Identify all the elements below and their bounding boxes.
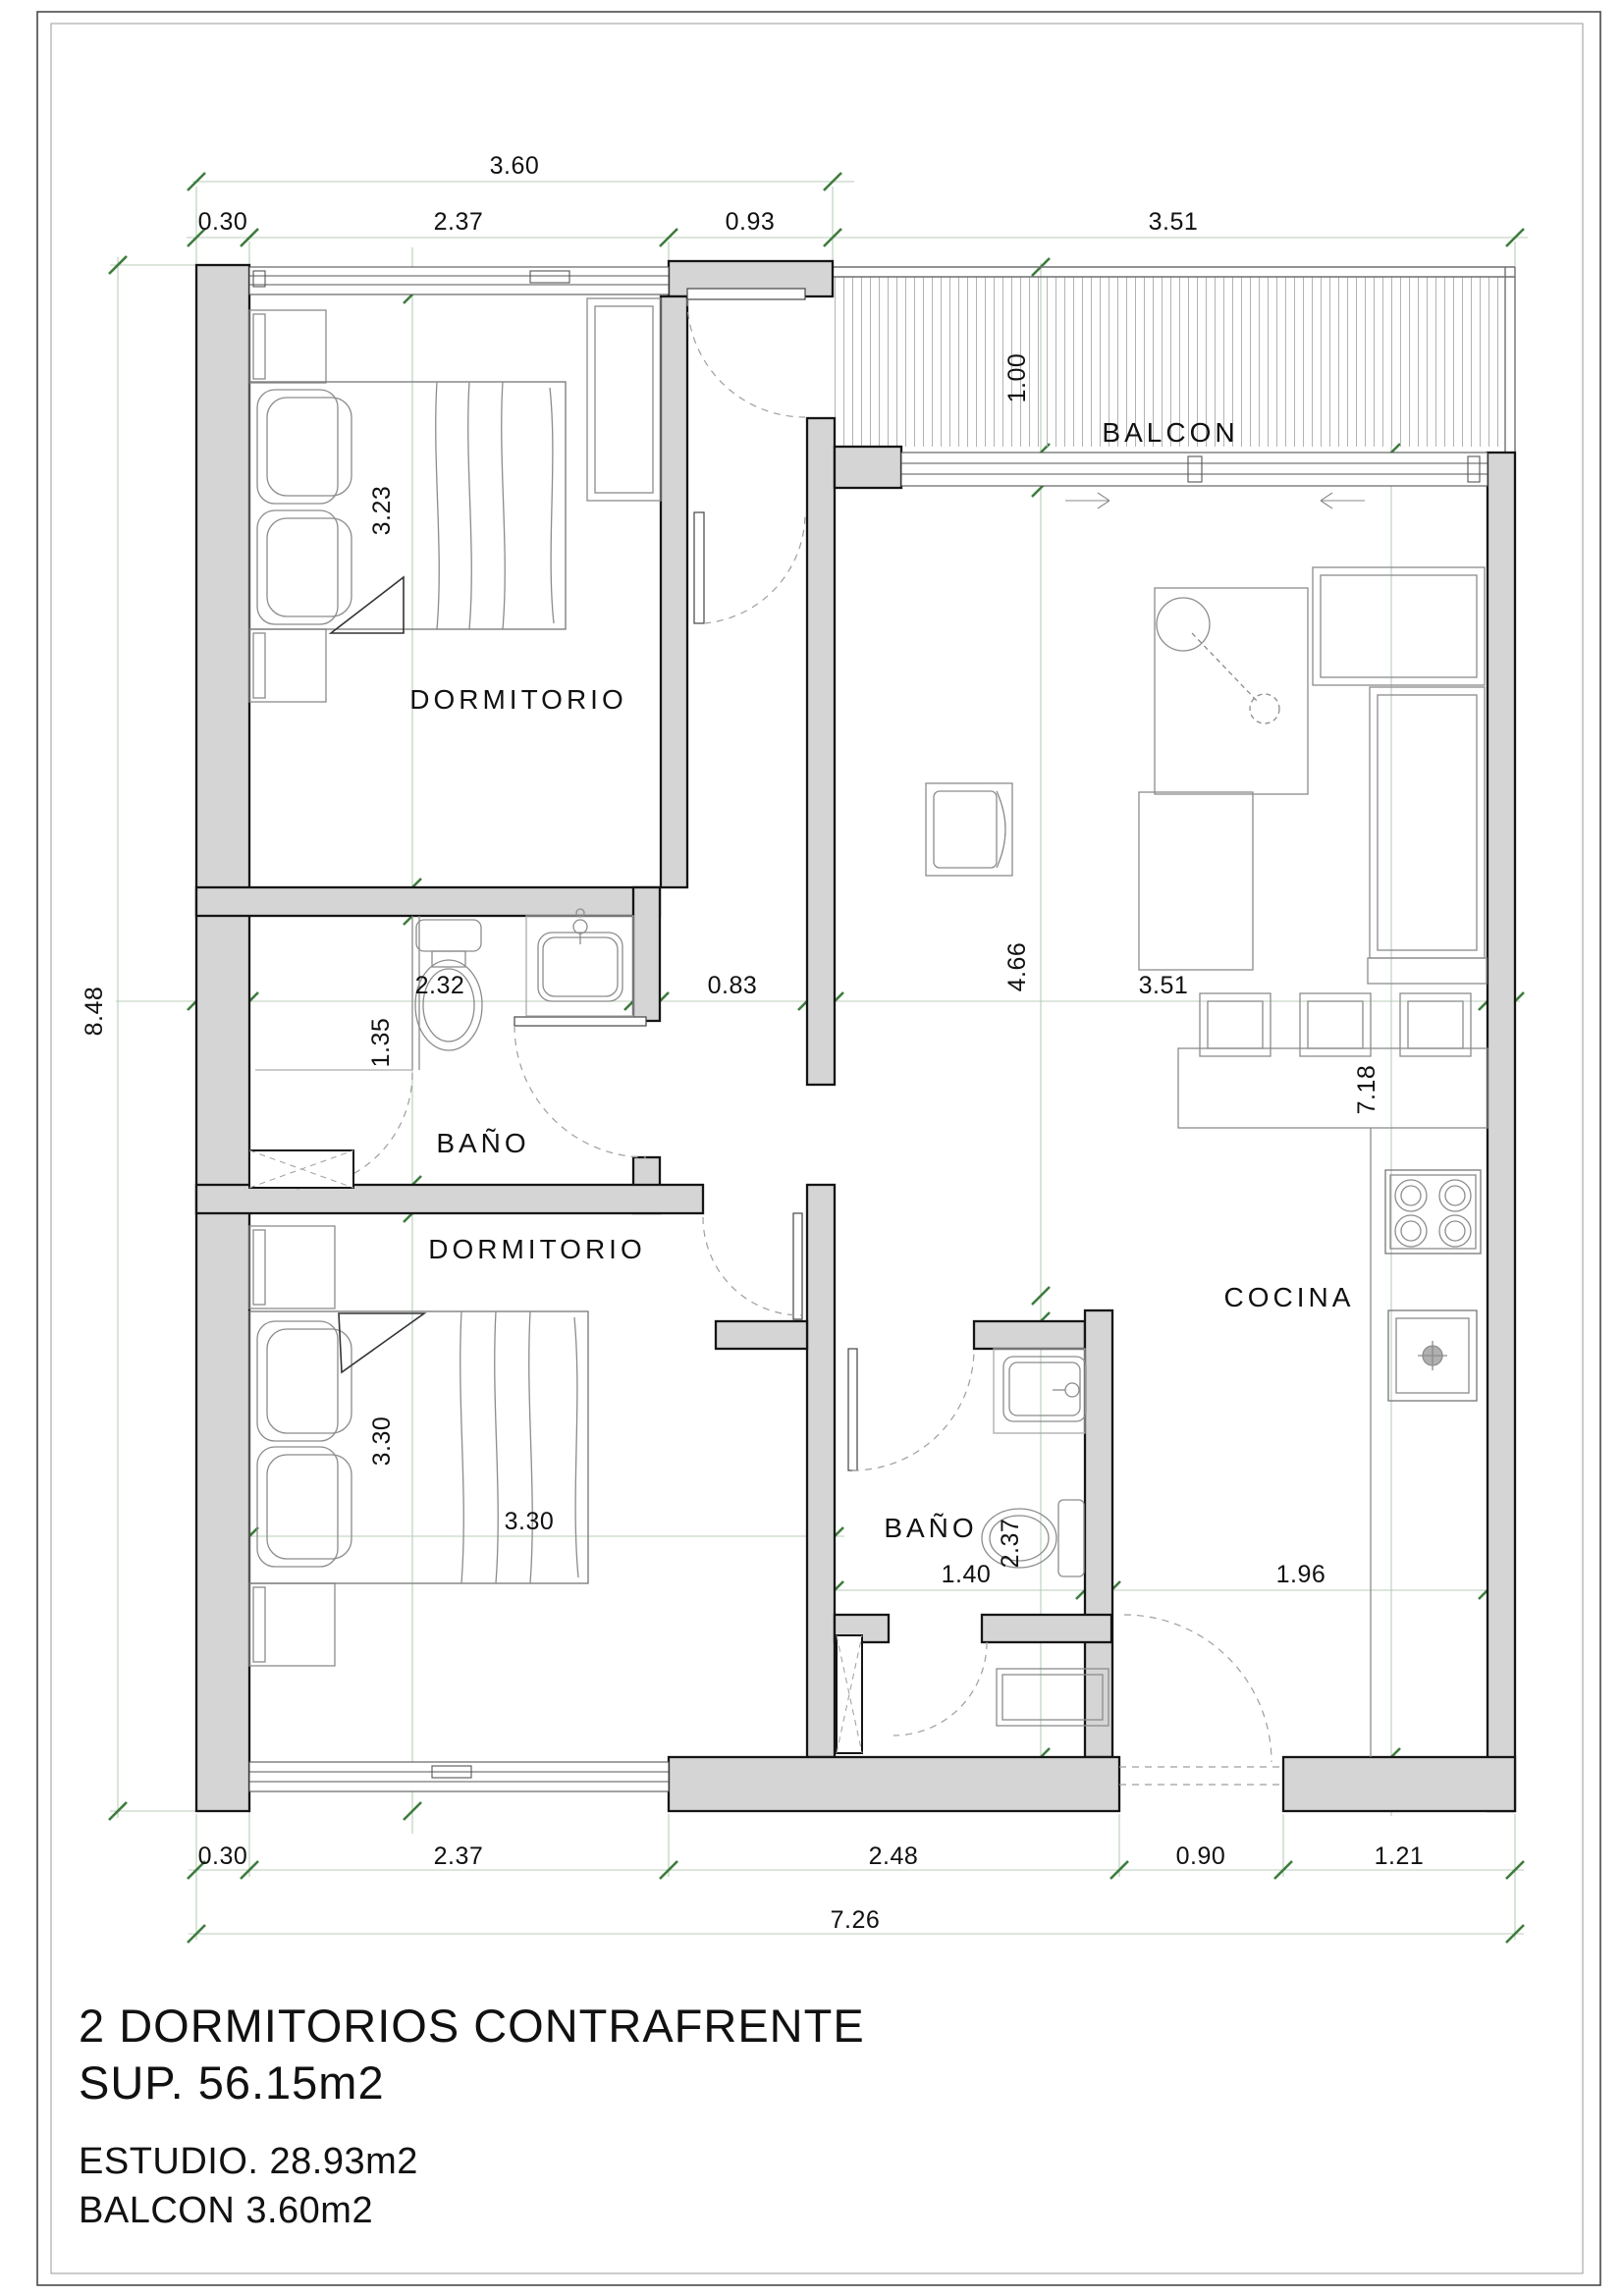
bed2-nightstand-bottom (249, 1583, 335, 1666)
dim-bath2-len: 2.37 (997, 1519, 1024, 1569)
room-label-balcon: BALCON (1102, 417, 1238, 448)
bath1-sink (526, 909, 633, 1016)
dim-bath1-w: 2.32 (415, 972, 465, 999)
bed1-wardrobe (587, 298, 661, 501)
title-block: 2 DORMITORIOS CONTRAFRENTE SUP. 56.15m2 … (79, 2000, 865, 2231)
dim-bot-248: 2.48 (869, 1842, 919, 1870)
dim-bed2-len: 3.30 (368, 1416, 396, 1467)
kitchen-sink (1388, 1310, 1477, 1401)
bar-stool-2 (1300, 993, 1371, 1056)
dim-estudio-len: 4.66 (1003, 942, 1031, 992)
desk (1155, 588, 1308, 794)
dim-balcon-d: 1.00 (1003, 353, 1031, 403)
room-label-bano-1: BAÑO (436, 1128, 529, 1158)
room-label-dormitorio-2: DORMITORIO (428, 1234, 645, 1264)
bed1 (249, 382, 566, 633)
coffee-table (1139, 792, 1253, 970)
room-label-dormitorio-1: DORMITORIO (409, 684, 626, 715)
bar-stool-1 (1200, 993, 1271, 1056)
dim-top-total: 3.60 (490, 152, 540, 180)
title-line4: BALCON 3.60m2 (79, 2190, 373, 2231)
stove (1385, 1170, 1481, 1254)
bedroom2-window (249, 1762, 669, 1791)
dim-right-len: 7.18 (1353, 1065, 1380, 1115)
dim-bot-total: 7.26 (831, 1906, 881, 1934)
slide-arrow-left-icon (1321, 493, 1365, 508)
dim-bath2-w: 1.40 (942, 1561, 992, 1588)
title-line1: 2 DORMITORIOS CONTRAFRENTE (79, 2000, 865, 2052)
bed1-nightstand-top (249, 310, 326, 383)
dim-bot-030: 0.30 (198, 1842, 248, 1870)
room-label-bano-2: BAÑO (884, 1513, 977, 1543)
room-label-cocina: COCINA (1224, 1282, 1355, 1312)
bed2-nightstand-top (249, 1226, 335, 1308)
furniture (249, 298, 1488, 1757)
doors (297, 289, 1283, 1785)
dim-bot-090: 0.90 (1176, 1842, 1226, 1870)
dim-estudio-w: 3.51 (1139, 972, 1189, 999)
dim-bot-237: 2.37 (434, 1842, 484, 1870)
dim-bed1-len: 3.23 (368, 486, 396, 536)
bar-stool-3 (1400, 993, 1471, 1056)
dim-bath1-h: 1.35 (367, 1018, 395, 1068)
bed1-nightstand-bottom (249, 629, 326, 702)
dim-left-total: 8.48 (81, 987, 108, 1037)
title-line3: ESTUDIO. 28.93m2 (79, 2141, 418, 2182)
armchair (926, 783, 1012, 876)
floor-plan-page: 3.60 0.30 2.37 0.93 3.51 8.48 1.00 3.23 … (0, 0, 1623, 2296)
slide-arrow-right-icon (1065, 493, 1109, 508)
dim-cocina-w: 1.96 (1276, 1561, 1326, 1588)
dim-balcon-w: 3.51 (1149, 208, 1199, 236)
floor-plan-svg: 3.60 0.30 2.37 0.93 3.51 8.48 1.00 3.23 … (0, 0, 1623, 2296)
bath2-sink (994, 1349, 1086, 1433)
kitchen-bar-counter (1178, 1048, 1488, 1128)
bedroom1-window (249, 267, 669, 294)
bed2 (249, 1311, 588, 1583)
dim-hall-w: 0.83 (708, 972, 758, 999)
title-line2: SUP. 56.15m2 (79, 2056, 385, 2109)
dim-bot-121: 1.21 (1375, 1842, 1425, 1870)
dim-top-237: 2.37 (434, 208, 484, 236)
sofa (1313, 567, 1487, 984)
dim-top-093: 0.93 (726, 208, 776, 236)
dim-top-030: 0.30 (198, 208, 248, 236)
estudio-window (901, 453, 1488, 486)
dim-bed2-w: 3.30 (505, 1508, 555, 1535)
